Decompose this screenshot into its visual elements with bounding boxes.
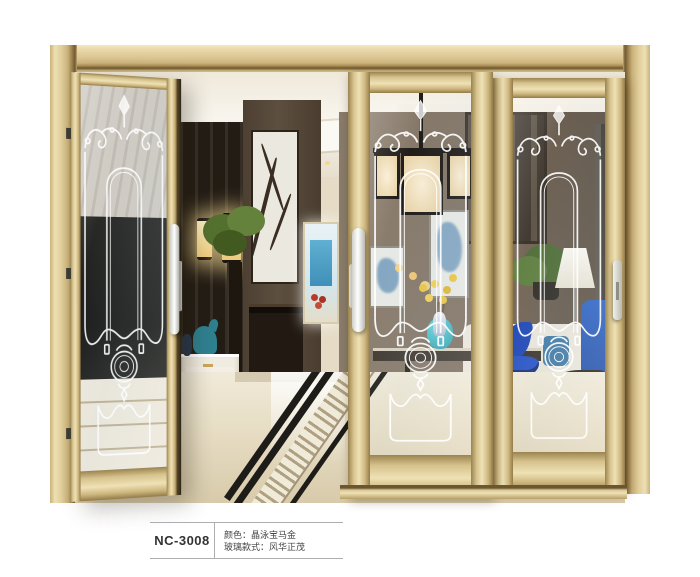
- door-stile: [70, 72, 81, 502]
- bottom-track: [340, 485, 627, 499]
- door-glass: [81, 85, 167, 472]
- sliding-panel-left: [348, 72, 493, 497]
- product-page: NC-3008 颜色：晶泳宝马金 玻璃款式：风华正茂: [0, 0, 700, 577]
- panel-stile: [493, 78, 513, 490]
- door-hinge: [66, 268, 71, 279]
- etched-glass-pattern: [370, 93, 471, 455]
- horse-statue: [193, 326, 217, 354]
- door-product-photo: [50, 45, 650, 503]
- blossom-painting: [253, 132, 297, 282]
- bright-doorway: [303, 222, 339, 324]
- bonsai-plant: [203, 214, 243, 248]
- panel-glass: [513, 98, 605, 452]
- dark-vase: [182, 334, 192, 356]
- spec-color: 颜色：晶泳宝马金: [224, 529, 305, 541]
- door-hinge: [66, 128, 71, 139]
- door-hinge: [66, 428, 71, 439]
- frame-jamb-right: [623, 45, 650, 494]
- doorway-sky: [310, 240, 332, 286]
- etched-glass-pattern: [513, 98, 605, 452]
- swing-door: [70, 72, 177, 502]
- panel-stile: [605, 78, 625, 490]
- red-flowers: [311, 294, 318, 301]
- door-handle: [169, 224, 179, 335]
- panel-glass: [370, 93, 471, 455]
- product-specs: 颜色：晶泳宝马金 玻璃款式：风华正茂: [215, 529, 305, 553]
- handle-slot: [616, 282, 619, 300]
- product-caption: NC-3008 颜色：晶泳宝马金 玻璃款式：风华正茂: [150, 522, 343, 559]
- panel-handle: [613, 260, 622, 320]
- panel-stile: [471, 72, 493, 497]
- frame-header: [50, 45, 650, 74]
- spec-glass-style: 玻璃款式：风华正茂: [224, 541, 305, 553]
- panel-handle: [352, 228, 365, 332]
- glass-sheen: [81, 85, 167, 472]
- product-model: NC-3008: [150, 533, 214, 548]
- drawer-handles: [203, 364, 213, 367]
- sliding-panel-right: [493, 78, 625, 490]
